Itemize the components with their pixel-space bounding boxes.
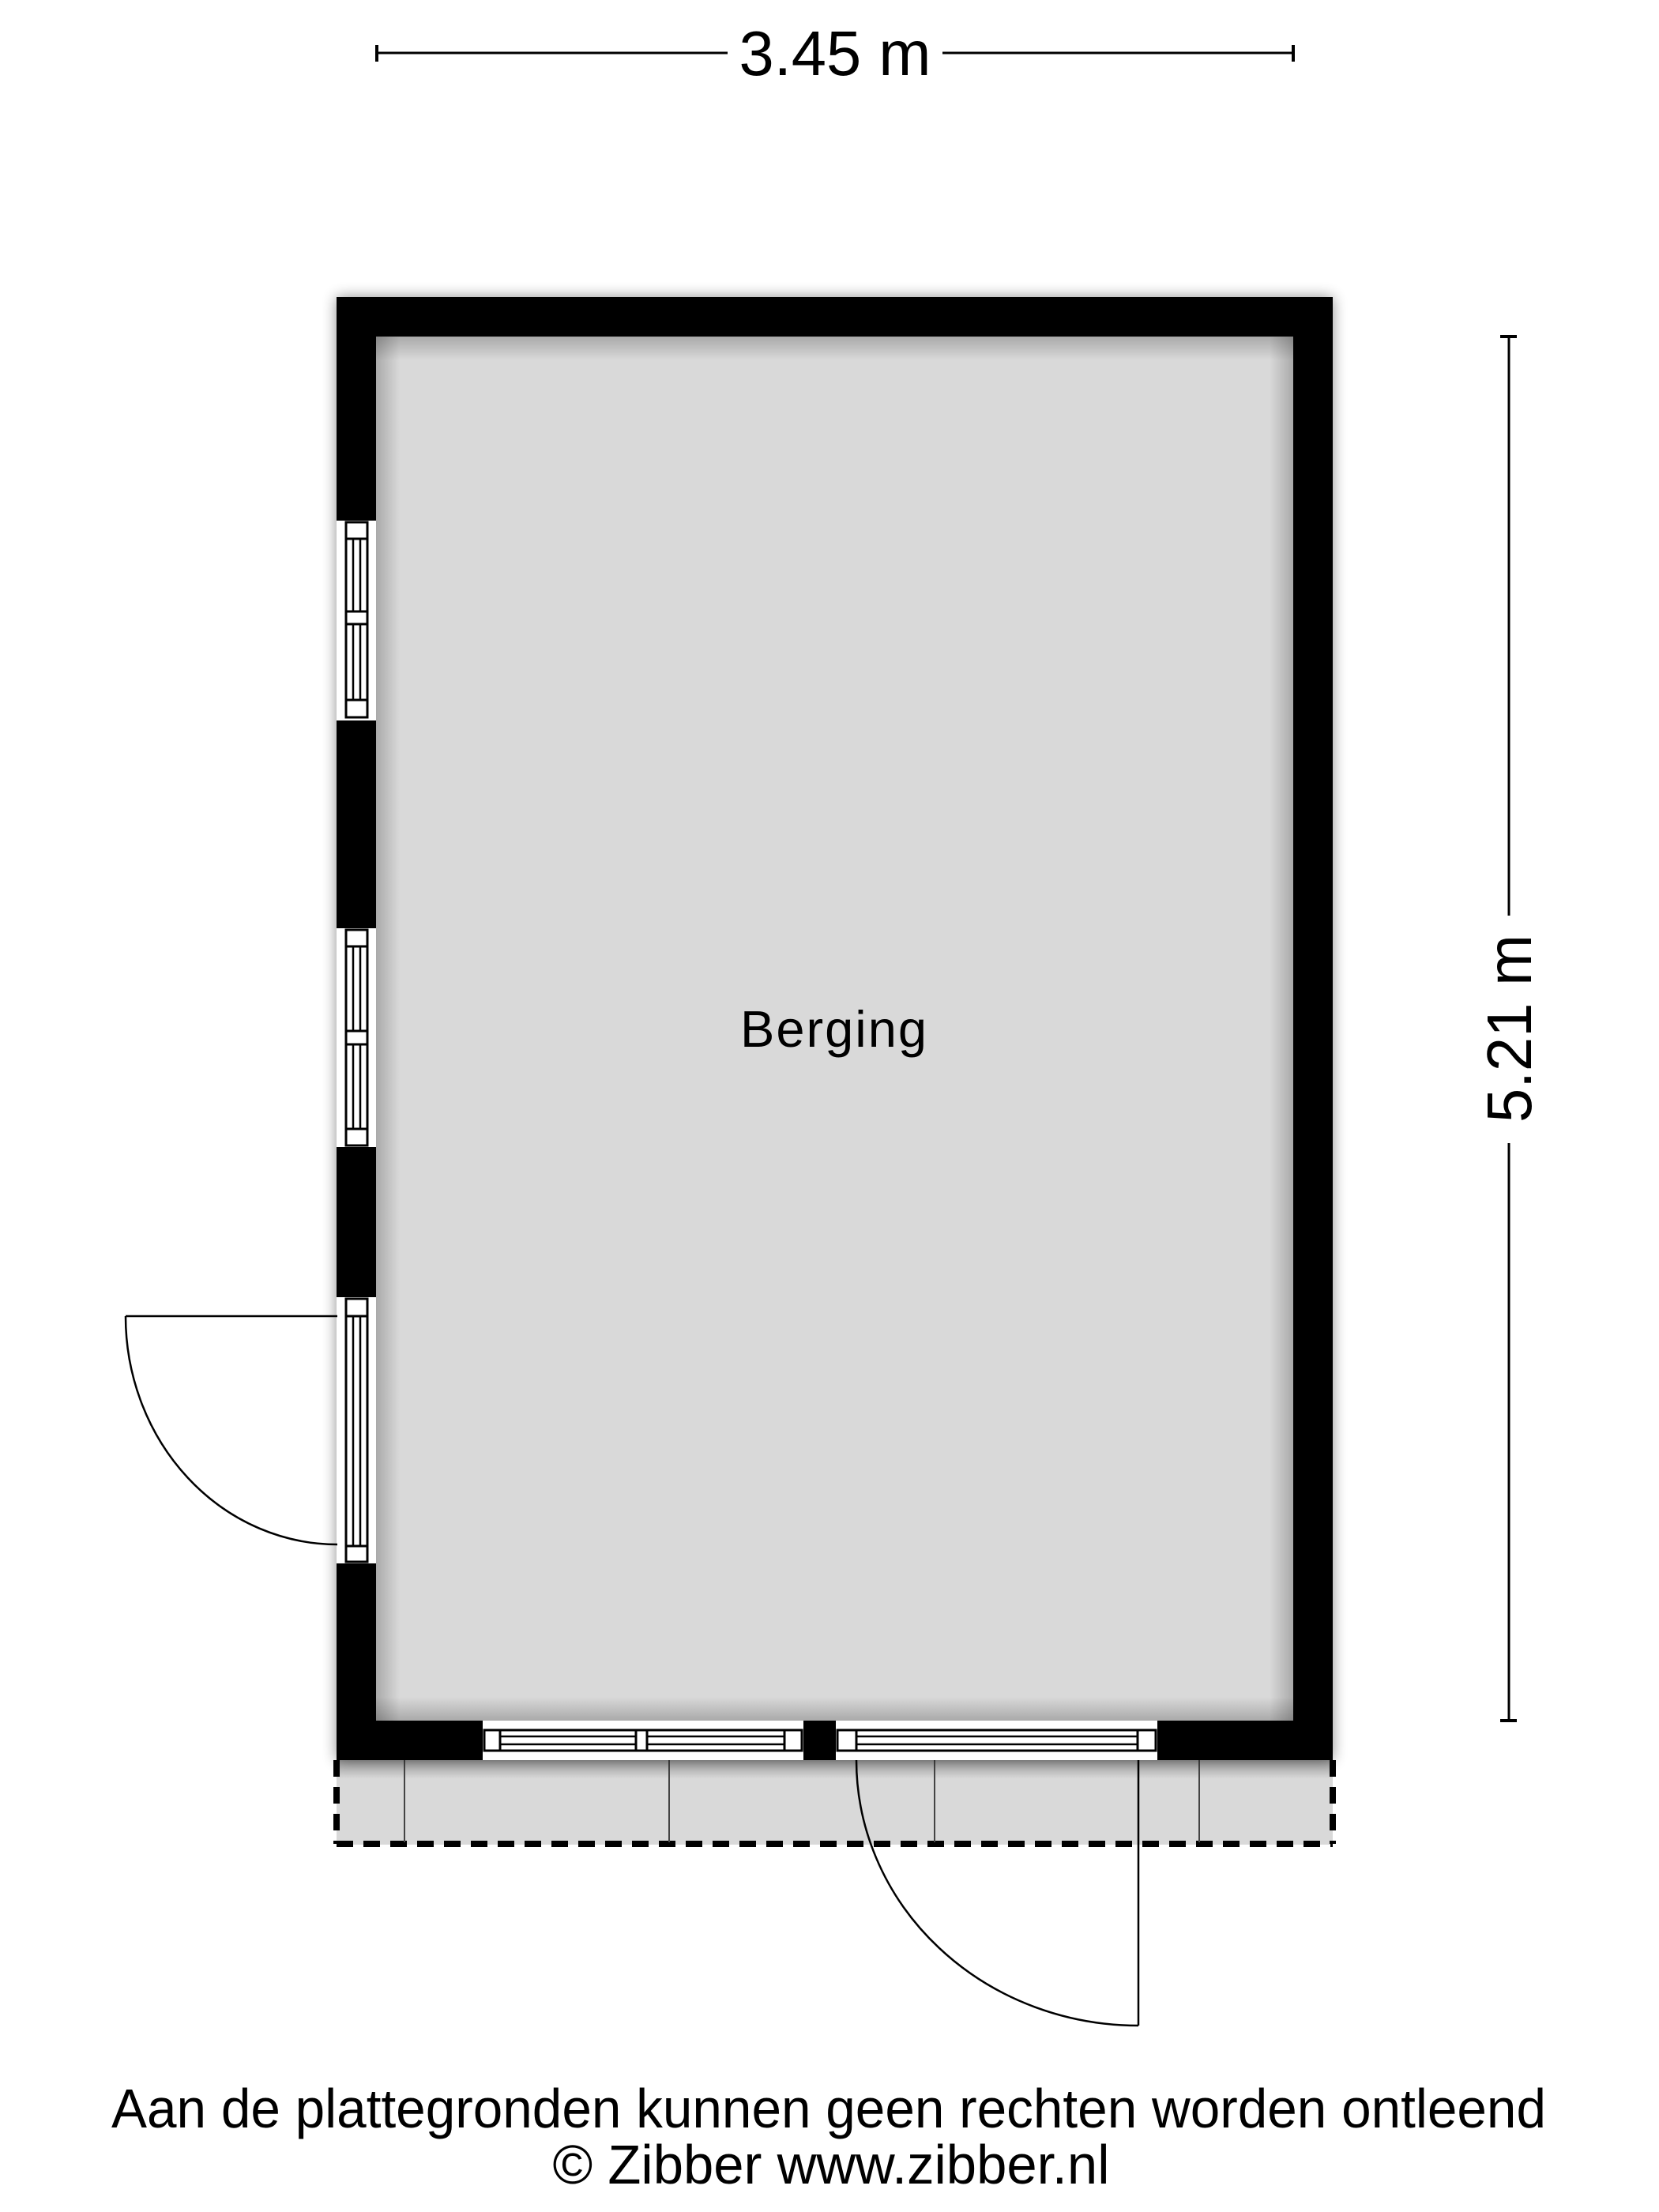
svg-text:Berging: Berging: [740, 1000, 928, 1058]
svg-text:3.45 m: 3.45 m: [739, 18, 931, 88]
svg-text:5.21 m: 5.21 m: [1474, 935, 1544, 1123]
svg-text:© Zibber www.zibber.nl: © Zibber www.zibber.nl: [553, 2134, 1110, 2195]
svg-text:Aan de plattegronden kunnen ge: Aan de plattegronden kunnen geen rechten…: [111, 2078, 1546, 2139]
